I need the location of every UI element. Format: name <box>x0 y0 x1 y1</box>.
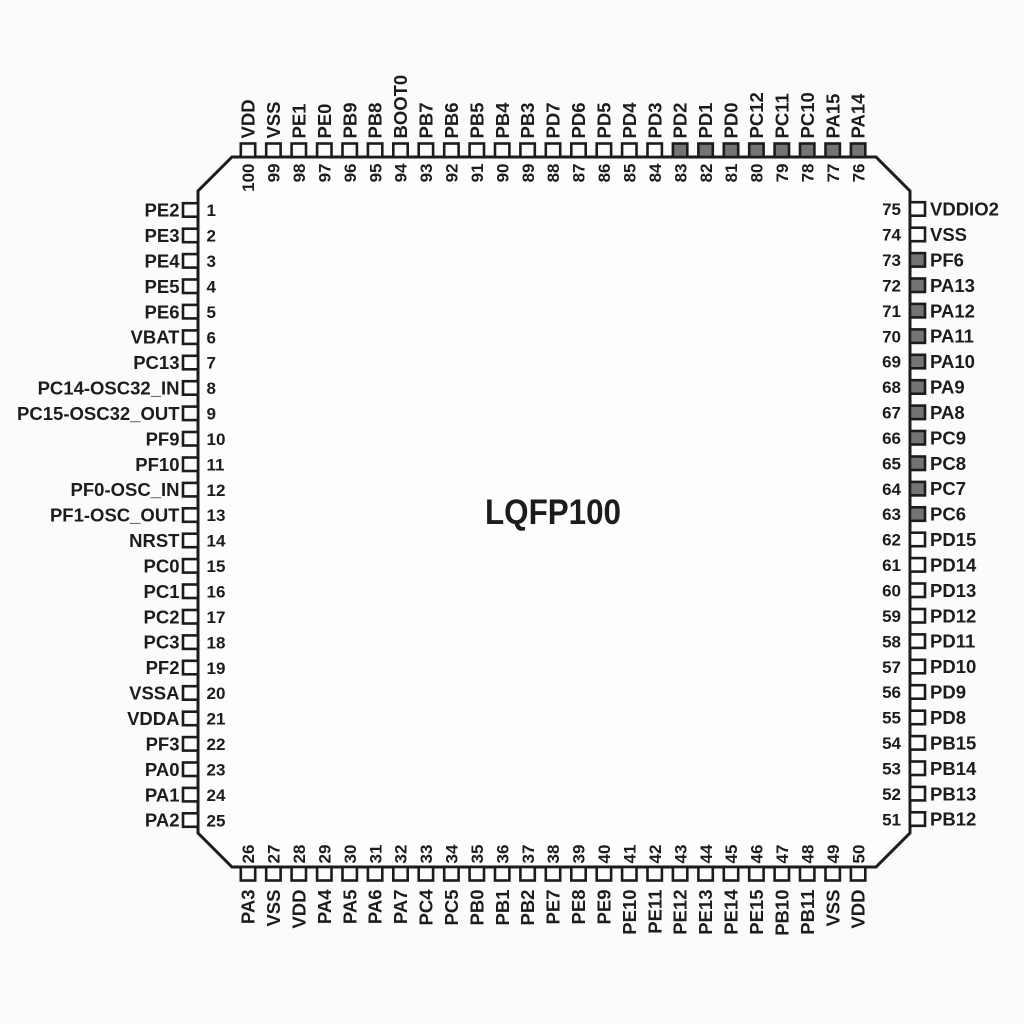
svg-text:PD1: PD1 <box>695 103 716 139</box>
svg-text:55: 55 <box>882 709 901 728</box>
svg-text:PE6: PE6 <box>145 301 180 322</box>
svg-text:10: 10 <box>207 430 226 449</box>
svg-text:77: 77 <box>824 164 843 183</box>
svg-text:93: 93 <box>417 164 436 183</box>
svg-text:PC13: PC13 <box>133 352 179 373</box>
svg-text:92: 92 <box>443 164 462 183</box>
svg-text:37: 37 <box>519 845 538 864</box>
svg-text:PA3: PA3 <box>238 890 259 925</box>
svg-text:VSS: VSS <box>822 890 843 927</box>
svg-text:LQFP100: LQFP100 <box>485 493 621 532</box>
svg-text:81: 81 <box>722 164 741 183</box>
svg-text:82: 82 <box>697 164 716 183</box>
svg-text:3: 3 <box>207 252 216 271</box>
svg-text:PD15: PD15 <box>930 529 976 550</box>
svg-text:NRST: NRST <box>129 530 180 551</box>
svg-text:PB7: PB7 <box>416 103 437 139</box>
svg-text:PC5: PC5 <box>441 890 462 926</box>
svg-text:2: 2 <box>207 227 216 246</box>
svg-text:PC6: PC6 <box>930 504 966 525</box>
svg-text:62: 62 <box>882 531 901 550</box>
svg-text:PF9: PF9 <box>146 428 180 449</box>
svg-text:PC15-OSC32_OUT: PC15-OSC32_OUT <box>17 403 180 424</box>
svg-text:VSS: VSS <box>263 101 284 138</box>
svg-text:PC1: PC1 <box>144 581 180 602</box>
svg-text:46: 46 <box>748 845 767 864</box>
svg-text:PB1: PB1 <box>492 890 513 926</box>
svg-text:PE11: PE11 <box>644 890 665 934</box>
svg-text:PD6: PD6 <box>568 103 589 139</box>
svg-text:5: 5 <box>207 303 216 322</box>
svg-text:VSS: VSS <box>263 890 284 927</box>
svg-text:86: 86 <box>595 164 614 183</box>
svg-text:PE5: PE5 <box>145 276 180 297</box>
svg-text:89: 89 <box>519 164 538 183</box>
svg-text:34: 34 <box>443 844 462 863</box>
svg-text:97: 97 <box>316 164 335 183</box>
svg-text:PD3: PD3 <box>644 103 665 139</box>
svg-text:18: 18 <box>207 633 226 652</box>
svg-text:PA1: PA1 <box>145 784 180 805</box>
svg-text:96: 96 <box>341 164 360 183</box>
svg-text:PA2: PA2 <box>145 810 180 831</box>
svg-text:6: 6 <box>207 328 216 347</box>
svg-text:1: 1 <box>207 201 216 220</box>
svg-text:PC7: PC7 <box>930 478 966 499</box>
svg-text:PC14-OSC32_IN: PC14-OSC32_IN <box>38 378 180 399</box>
svg-text:PA15: PA15 <box>822 94 843 139</box>
svg-text:28: 28 <box>290 845 309 864</box>
svg-text:88: 88 <box>544 164 563 183</box>
svg-text:PE2: PE2 <box>145 200 180 221</box>
svg-text:57: 57 <box>882 658 901 677</box>
svg-text:7: 7 <box>207 354 216 373</box>
svg-text:16: 16 <box>207 583 226 602</box>
svg-text:41: 41 <box>621 845 640 864</box>
svg-text:50: 50 <box>849 845 868 864</box>
svg-text:PD13: PD13 <box>930 580 976 601</box>
svg-text:43: 43 <box>671 845 690 864</box>
svg-text:56: 56 <box>882 683 901 702</box>
svg-text:76: 76 <box>849 164 868 183</box>
svg-text:72: 72 <box>882 277 901 296</box>
svg-text:84: 84 <box>646 163 665 182</box>
svg-text:PB10: PB10 <box>771 890 792 936</box>
svg-text:PD7: PD7 <box>543 103 564 139</box>
svg-text:PB12: PB12 <box>930 809 976 830</box>
svg-text:64: 64 <box>882 480 901 499</box>
svg-text:PF3: PF3 <box>146 733 180 754</box>
svg-text:75: 75 <box>882 200 901 219</box>
svg-text:VDD: VDD <box>238 99 259 138</box>
svg-text:PF2: PF2 <box>146 657 180 678</box>
svg-text:94: 94 <box>392 163 411 182</box>
svg-text:36: 36 <box>493 845 512 864</box>
svg-text:99: 99 <box>265 164 284 183</box>
svg-text:54: 54 <box>882 734 901 753</box>
svg-text:98: 98 <box>290 164 309 183</box>
svg-text:13: 13 <box>207 506 226 525</box>
svg-text:87: 87 <box>570 164 589 183</box>
svg-text:PB3: PB3 <box>517 103 538 139</box>
svg-text:VBAT: VBAT <box>131 327 181 348</box>
svg-text:27: 27 <box>265 845 284 864</box>
svg-text:14: 14 <box>207 532 226 551</box>
svg-text:PE9: PE9 <box>594 890 615 925</box>
svg-text:PF10: PF10 <box>135 454 179 475</box>
svg-text:35: 35 <box>468 845 487 864</box>
svg-text:40: 40 <box>595 845 614 864</box>
svg-text:83: 83 <box>671 164 690 183</box>
svg-text:PA13: PA13 <box>930 275 975 296</box>
svg-text:PA9: PA9 <box>930 377 965 398</box>
svg-text:65: 65 <box>882 454 901 473</box>
svg-text:PE13: PE13 <box>695 890 716 935</box>
svg-text:52: 52 <box>882 785 901 804</box>
svg-text:53: 53 <box>882 759 901 778</box>
svg-text:11: 11 <box>207 455 225 474</box>
svg-text:15: 15 <box>207 557 226 576</box>
svg-text:PE10: PE10 <box>619 890 640 935</box>
svg-text:44: 44 <box>697 844 716 863</box>
svg-text:70: 70 <box>882 327 901 346</box>
svg-text:PD2: PD2 <box>670 103 691 139</box>
svg-text:61: 61 <box>882 556 901 575</box>
svg-text:PE15: PE15 <box>746 890 767 935</box>
svg-text:PE3: PE3 <box>145 225 180 246</box>
svg-text:PA7: PA7 <box>390 890 411 925</box>
svg-text:PB2: PB2 <box>517 890 538 926</box>
svg-text:PE0: PE0 <box>314 104 335 139</box>
svg-text:PB4: PB4 <box>492 102 513 139</box>
svg-text:90: 90 <box>493 164 512 183</box>
svg-text:59: 59 <box>882 607 901 626</box>
svg-text:100: 100 <box>239 164 258 192</box>
svg-text:71: 71 <box>882 302 901 321</box>
svg-text:45: 45 <box>722 845 741 864</box>
svg-text:PD5: PD5 <box>594 103 615 139</box>
svg-text:PD14: PD14 <box>930 555 977 576</box>
svg-text:PC12: PC12 <box>746 92 767 138</box>
svg-text:74: 74 <box>882 226 901 245</box>
svg-text:PB5: PB5 <box>466 102 487 138</box>
svg-text:PB0: PB0 <box>466 890 487 926</box>
svg-text:91: 91 <box>468 164 487 183</box>
svg-text:29: 29 <box>316 845 335 864</box>
svg-text:PB13: PB13 <box>930 783 976 804</box>
svg-text:PF1-OSC_OUT: PF1-OSC_OUT <box>50 505 180 526</box>
svg-text:PD12: PD12 <box>930 605 976 626</box>
svg-text:69: 69 <box>882 353 901 372</box>
svg-text:42: 42 <box>646 845 665 864</box>
svg-text:66: 66 <box>882 429 901 448</box>
svg-text:60: 60 <box>882 582 901 601</box>
svg-text:VDDIO2: VDDIO2 <box>930 199 999 220</box>
svg-text:17: 17 <box>207 608 226 627</box>
svg-text:26: 26 <box>239 845 258 864</box>
svg-text:31: 31 <box>366 845 385 864</box>
svg-text:51: 51 <box>882 810 901 829</box>
svg-text:PF0-OSC_IN: PF0-OSC_IN <box>71 479 180 500</box>
svg-text:48: 48 <box>798 845 817 864</box>
svg-text:VDDA: VDDA <box>127 708 179 729</box>
svg-text:PA8: PA8 <box>930 402 965 423</box>
svg-text:20: 20 <box>207 684 226 703</box>
svg-text:PC2: PC2 <box>144 606 180 627</box>
svg-text:67: 67 <box>882 404 901 423</box>
svg-text:19: 19 <box>207 659 226 678</box>
svg-text:23: 23 <box>207 760 226 779</box>
svg-text:PB8: PB8 <box>365 103 386 139</box>
svg-text:BOOT0: BOOT0 <box>390 75 411 139</box>
svg-text:8: 8 <box>207 379 216 398</box>
svg-text:PE8: PE8 <box>568 890 589 925</box>
svg-text:PE1: PE1 <box>288 104 309 139</box>
svg-text:PA4: PA4 <box>314 889 335 924</box>
svg-text:PA10: PA10 <box>930 351 975 372</box>
svg-text:PC8: PC8 <box>930 453 966 474</box>
svg-text:32: 32 <box>392 845 411 864</box>
svg-text:78: 78 <box>798 164 817 183</box>
svg-text:33: 33 <box>417 845 436 864</box>
svg-text:80: 80 <box>748 164 767 183</box>
svg-text:PC11: PC11 <box>771 93 792 138</box>
svg-text:PE14: PE14 <box>721 889 742 935</box>
svg-text:PA0: PA0 <box>145 759 180 780</box>
svg-text:21: 21 <box>207 710 226 729</box>
svg-text:PA6: PA6 <box>365 890 386 925</box>
svg-text:PB15: PB15 <box>930 732 976 753</box>
svg-text:PD4: PD4 <box>619 102 640 139</box>
svg-text:9: 9 <box>207 405 216 424</box>
svg-text:73: 73 <box>882 251 901 270</box>
svg-text:PC10: PC10 <box>797 92 818 138</box>
svg-text:30: 30 <box>341 845 360 864</box>
svg-text:PC0: PC0 <box>144 556 180 577</box>
svg-text:PA14: PA14 <box>848 93 869 139</box>
svg-text:PF6: PF6 <box>930 249 964 270</box>
svg-text:PA12: PA12 <box>930 300 975 321</box>
svg-text:PD11: PD11 <box>930 631 975 652</box>
svg-text:PE12: PE12 <box>670 890 691 935</box>
svg-text:VDD: VDD <box>848 890 869 929</box>
svg-text:PE7: PE7 <box>543 890 564 925</box>
svg-text:PB11: PB11 <box>797 890 818 935</box>
svg-text:4: 4 <box>207 278 217 297</box>
svg-text:PB9: PB9 <box>339 103 360 139</box>
svg-text:25: 25 <box>207 811 226 830</box>
svg-text:68: 68 <box>882 378 901 397</box>
svg-text:85: 85 <box>621 164 640 183</box>
svg-text:PA11: PA11 <box>930 326 974 347</box>
svg-text:PB6: PB6 <box>441 103 462 139</box>
svg-text:VSS: VSS <box>930 224 967 245</box>
svg-text:PD0: PD0 <box>721 103 742 139</box>
svg-text:47: 47 <box>773 845 792 864</box>
svg-text:79: 79 <box>773 164 792 183</box>
svg-text:39: 39 <box>570 845 589 864</box>
svg-text:PD9: PD9 <box>930 682 966 703</box>
svg-text:PC9: PC9 <box>930 427 966 448</box>
svg-text:PA5: PA5 <box>339 890 360 925</box>
svg-text:PB14: PB14 <box>930 758 977 779</box>
svg-text:95: 95 <box>366 164 385 183</box>
svg-text:PC3: PC3 <box>144 632 180 653</box>
svg-text:PD10: PD10 <box>930 656 976 677</box>
svg-text:24: 24 <box>207 786 226 805</box>
svg-text:38: 38 <box>544 845 563 864</box>
svg-text:58: 58 <box>882 632 901 651</box>
svg-text:PD8: PD8 <box>930 707 966 728</box>
svg-text:22: 22 <box>207 735 226 754</box>
svg-text:12: 12 <box>207 481 226 500</box>
svg-text:VSSA: VSSA <box>129 683 179 704</box>
svg-text:PC4: PC4 <box>416 889 437 926</box>
svg-text:63: 63 <box>882 505 901 524</box>
svg-text:VDD: VDD <box>288 890 309 929</box>
svg-text:49: 49 <box>824 845 843 864</box>
svg-text:PE4: PE4 <box>145 250 181 271</box>
